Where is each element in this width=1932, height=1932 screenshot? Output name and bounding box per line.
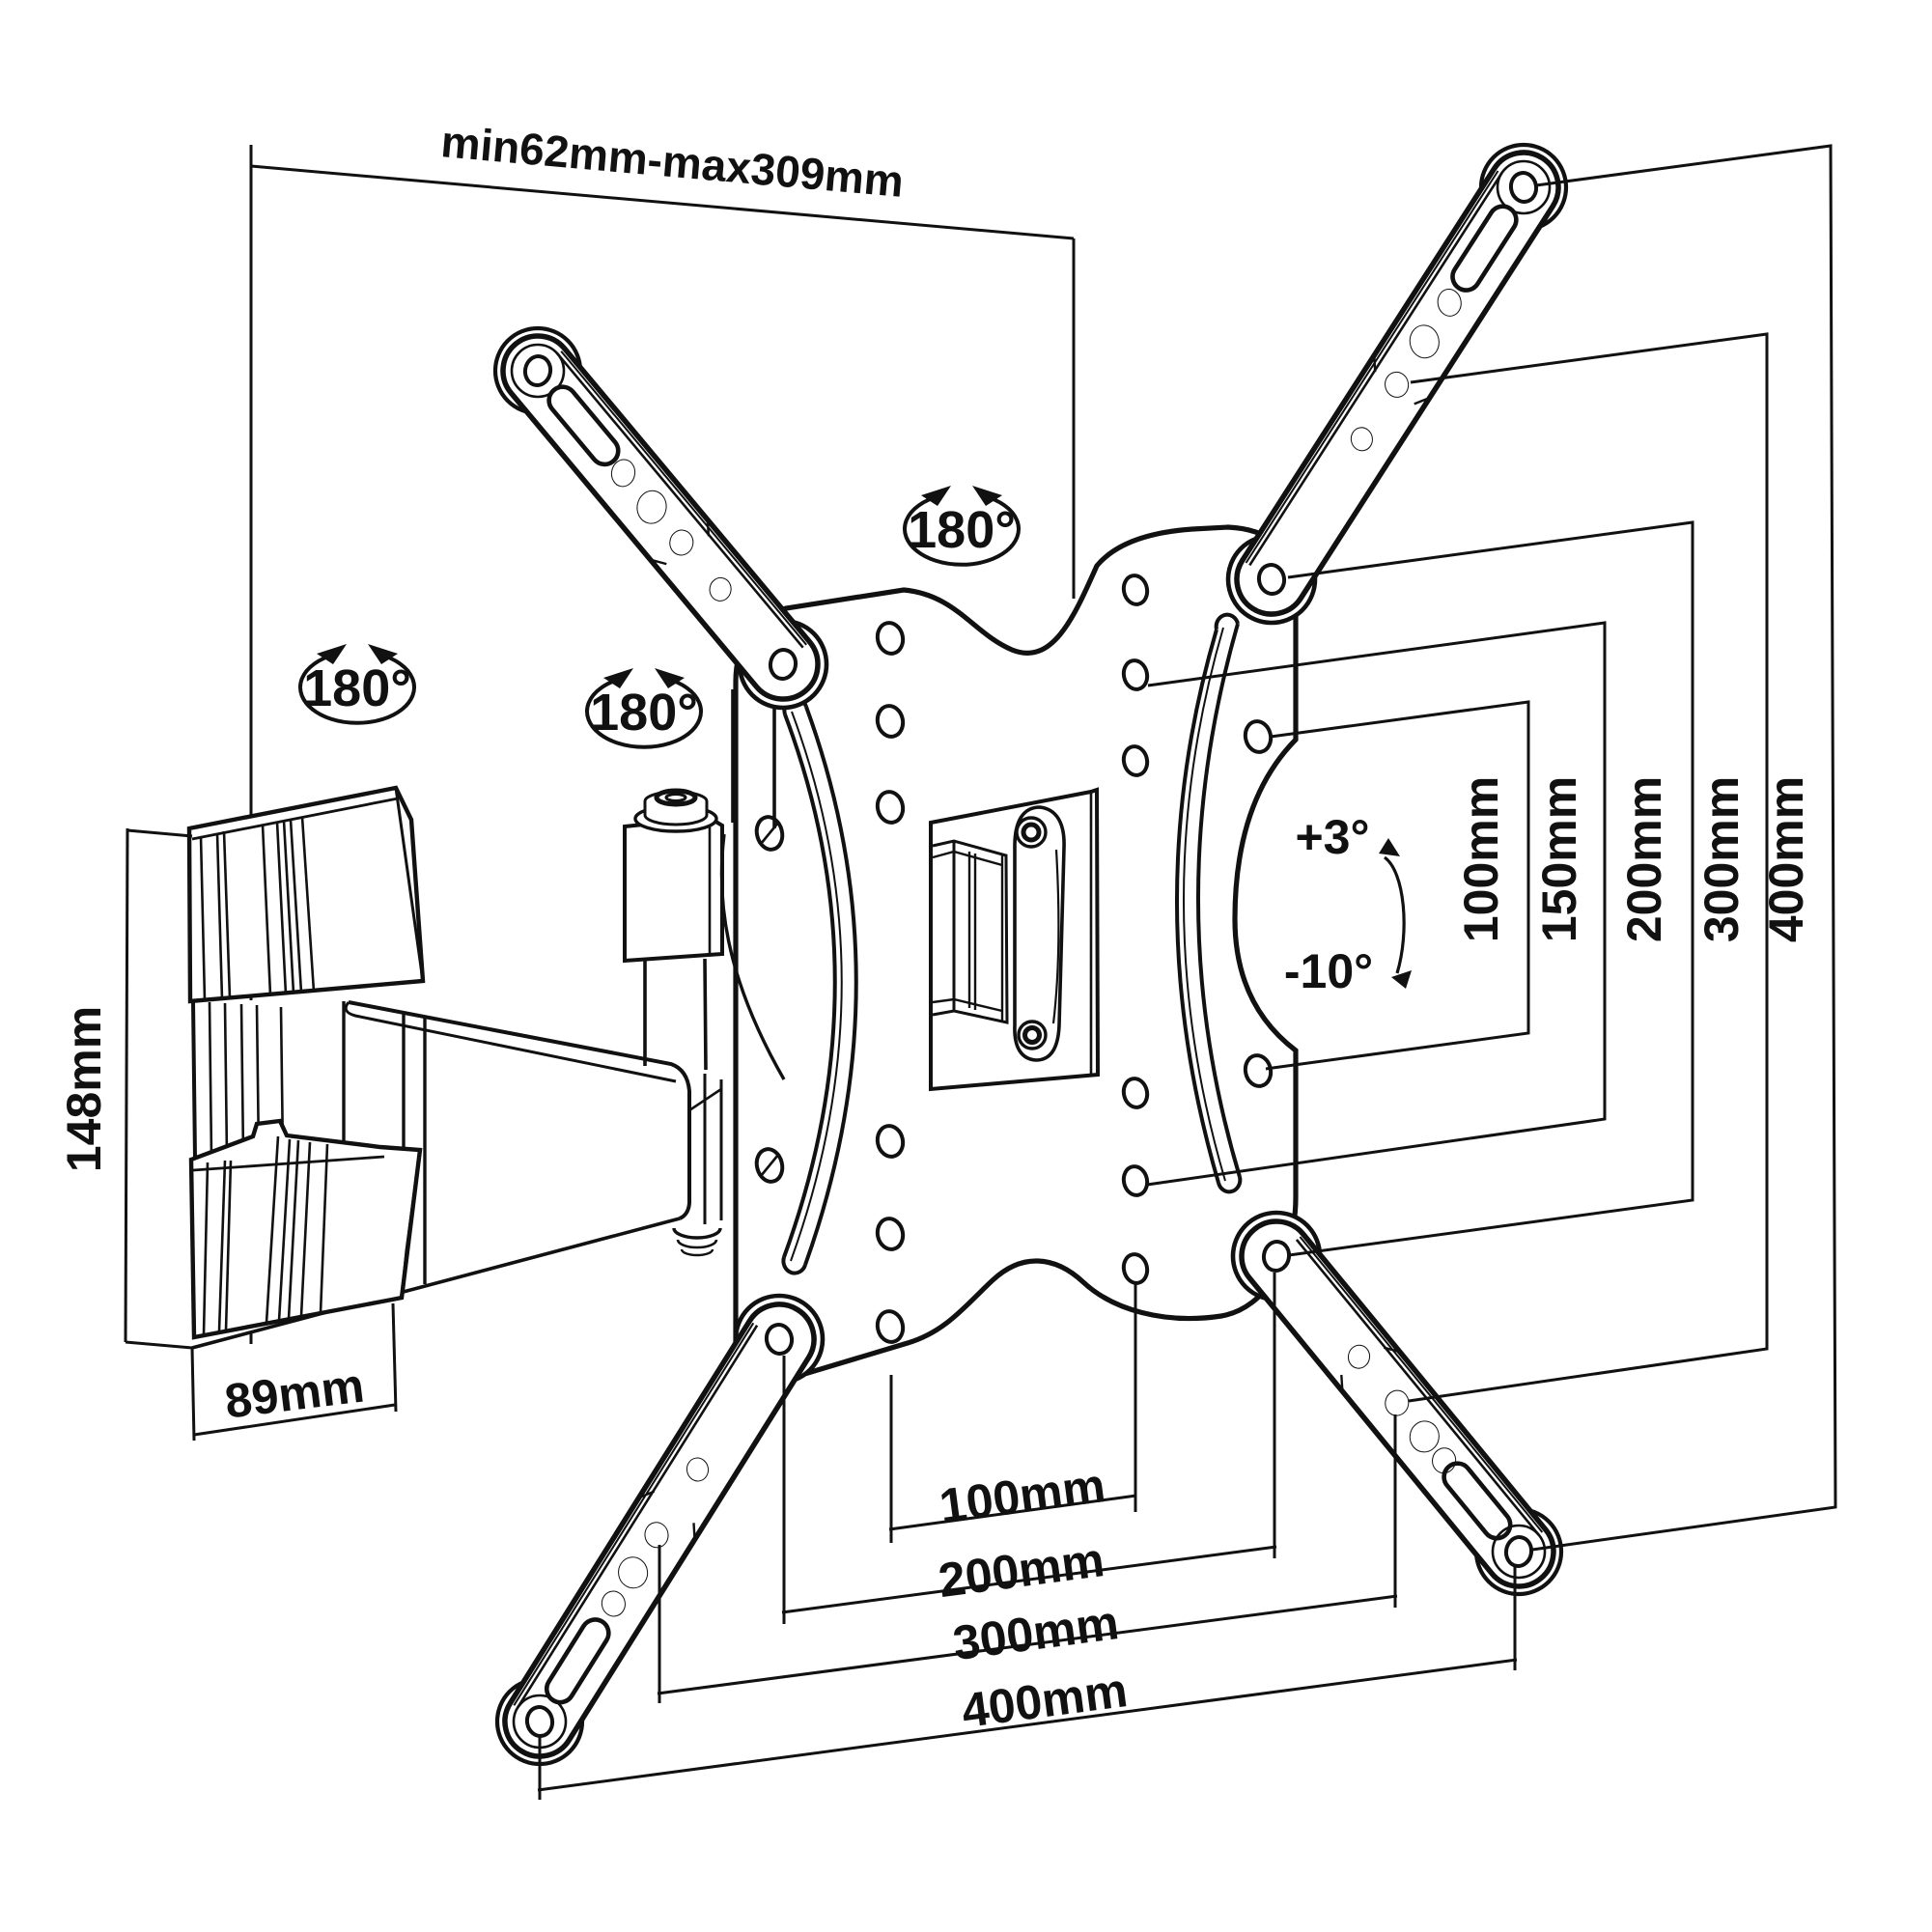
svg-text:+3°: +3° <box>1295 810 1369 864</box>
svg-text:180°: 180° <box>590 684 698 742</box>
svg-text:180°: 180° <box>908 501 1016 559</box>
svg-text:200mm: 200mm <box>1617 776 1671 942</box>
svg-text:180°: 180° <box>303 659 411 717</box>
svg-text:150mm: 150mm <box>1532 776 1586 942</box>
svg-text:400mm: 400mm <box>1759 776 1813 942</box>
svg-text:148mm: 148mm <box>57 1006 111 1172</box>
svg-text:-10°: -10° <box>1284 944 1373 998</box>
svg-text:100mm: 100mm <box>1454 776 1508 942</box>
svg-text:300mm: 300mm <box>1694 776 1749 942</box>
